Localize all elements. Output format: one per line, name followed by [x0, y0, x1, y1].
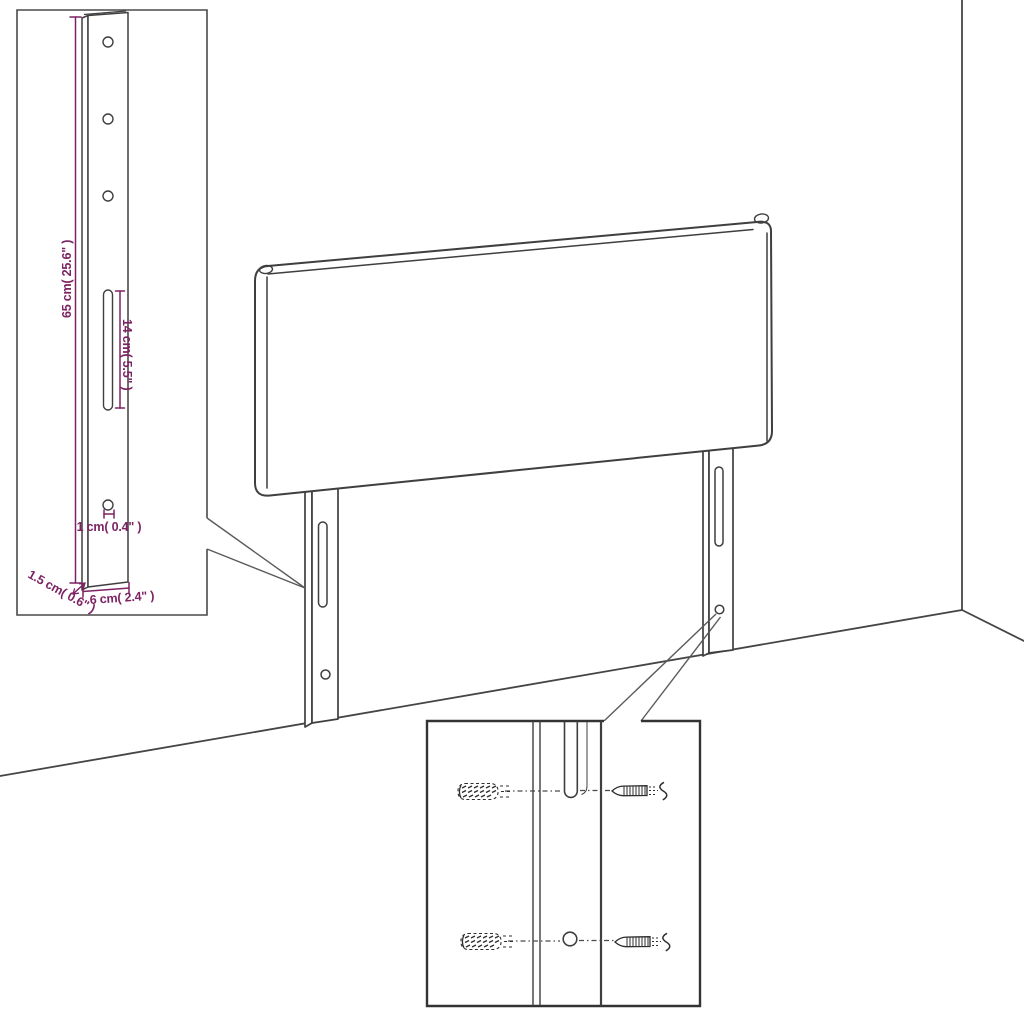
- leg-bracket-drawing: [82, 11, 128, 590]
- headboard: [255, 213, 772, 495]
- right-leg-hole: [715, 605, 724, 614]
- left-leg-slot: [319, 522, 328, 607]
- dimension-label-slot: 14 cm( 5.5" ): [120, 319, 134, 390]
- left-leg-hole: [321, 670, 330, 679]
- leg-detail-callout-lines: [207, 518, 305, 588]
- hardware-detail-inset: [427, 614, 721, 1006]
- left-leg-side-face: [305, 473, 312, 727]
- assembly-diagram-canvas: 65 cm( 25.6" ) 14 cm( 5.5" ) 1 cm( 0.4" …: [0, 0, 1024, 1024]
- bracket-small-hole: [103, 500, 113, 510]
- bracket-hole-3: [103, 191, 113, 201]
- dimension-label-height: 65 cm( 25.6" ): [60, 240, 74, 318]
- bracket-hole-1: [103, 37, 113, 47]
- headboard-outline: [255, 222, 772, 496]
- assembly-diagram: 65 cm( 25.6" ) 14 cm( 5.5" ) 1 cm( 0.4" …: [0, 0, 1024, 1024]
- floor-line-right: [962, 610, 1024, 641]
- bracket-side-face: [82, 16, 88, 591]
- right-leg-slot: [715, 467, 723, 546]
- hardware-box-border: [427, 721, 700, 1006]
- bracket-hole-2: [103, 114, 113, 124]
- dimension-label-hole: 1 cm( 0.4" ): [77, 520, 142, 534]
- left-mounting-leg: [305, 471, 338, 727]
- bracket-slot: [104, 290, 113, 410]
